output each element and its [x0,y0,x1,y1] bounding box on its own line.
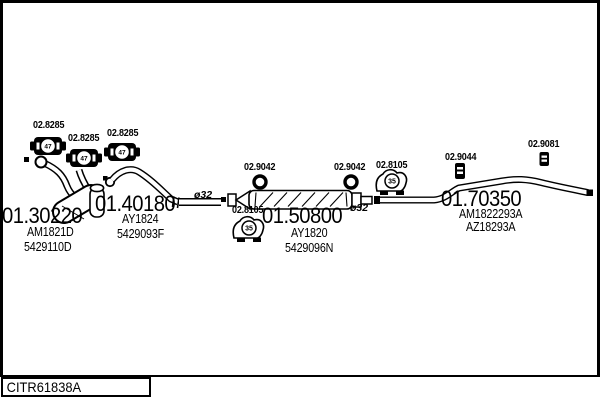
silencer-type: AY1820 [291,227,327,240]
tail-pipe-type: AM1822293A [459,208,522,221]
front-pipe-oe: 5429110D [24,241,71,254]
catalog-code-box: CITR61838A [1,377,151,397]
front-pipe-type: AM1821D [27,226,74,239]
silencer-ref: 01.50800 [262,205,342,228]
bracket-label-1: 02.9044 [445,153,476,163]
hanger-size: 35 [245,226,253,233]
silencer-oe: 5429096N [285,242,333,255]
hanger-size: 35 [388,179,396,186]
hanger-icon: 35 [376,170,406,195]
ring-label-1: 02.9042 [244,163,275,173]
bracket-icon [540,152,550,166]
gasket-size: 47 [80,156,88,163]
ring-icon [254,176,266,188]
gasket-icon: 47 [30,137,66,155]
gasket-label-3: 02.8285 [107,129,138,139]
pipe-diameter-label-2: ø32 [350,203,368,214]
catalog-code: CITR61838A [3,379,81,395]
mid-pipe-oe: 5429093F [117,228,164,241]
flange-ring-icon [36,157,47,168]
gasket-size: 47 [44,144,52,151]
bolt-icon [221,197,226,202]
gasket-icon: 47 [104,143,140,161]
bolt-icon [24,157,29,162]
hanger-icon: 35 [233,217,263,242]
pipe-diameter-label-1: ø32 [194,190,212,201]
bracket-icon [455,163,465,179]
pipe-end-icon [587,190,594,197]
hanger-label-2: 02.8105 [376,161,407,171]
bracket-label-2: 02.9081 [528,140,559,150]
mid-pipe-type: AY1824 [122,213,158,226]
gasket-icon: 47 [66,149,102,167]
gasket-size: 47 [118,150,126,157]
gasket-label-1: 02.8285 [33,121,64,131]
ring-label-2: 02.9042 [334,163,365,173]
tail-pipe-oe: AZ18293A [466,221,515,234]
hanger-label-1: 02.8105 [232,206,263,216]
exhaust-parts-diagram: 47 47 47 35 [0,0,600,400]
gasket-label-2: 02.8285 [68,134,99,144]
ring-icon [345,176,357,188]
